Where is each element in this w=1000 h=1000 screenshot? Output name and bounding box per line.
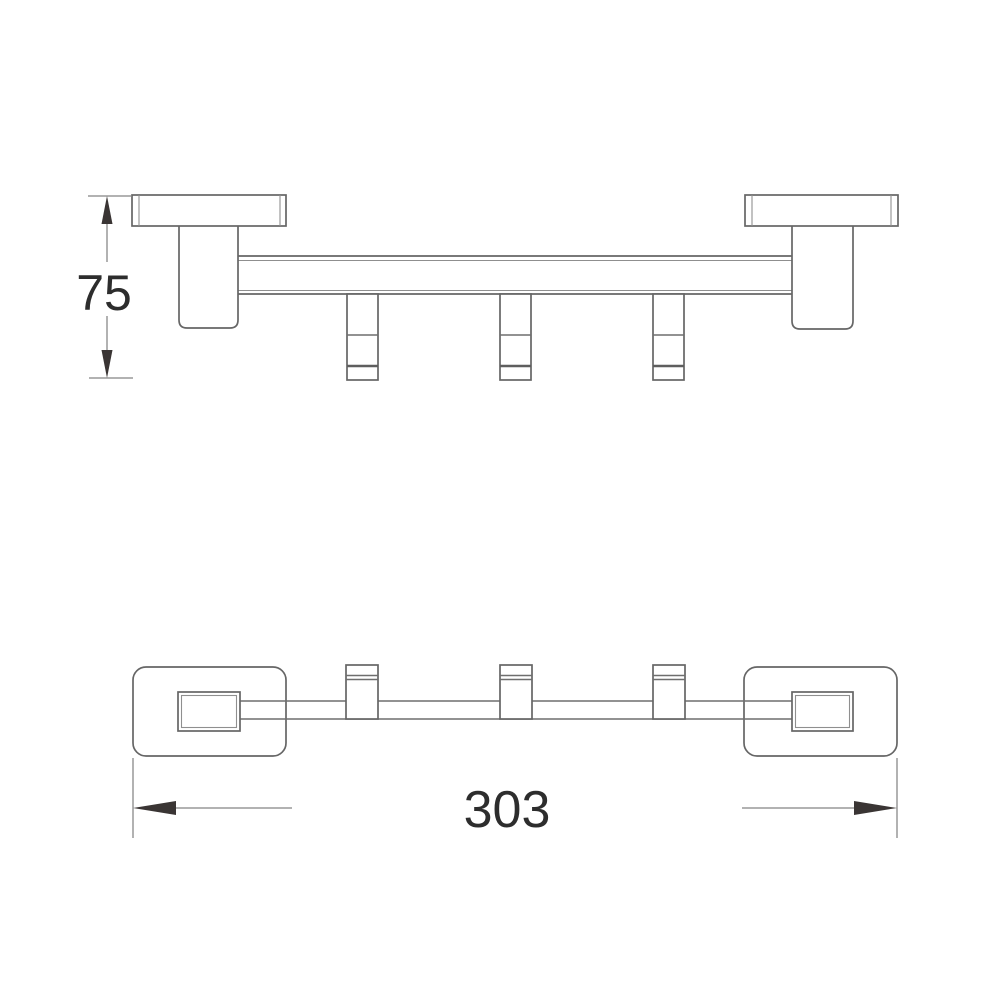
plan-hook-3-body xyxy=(653,665,685,719)
front-bar-body xyxy=(238,256,792,294)
plan-hook-3 xyxy=(653,665,685,719)
plan-left-post-outer xyxy=(178,692,240,731)
front-left-flange xyxy=(132,195,286,226)
front-hook-1 xyxy=(347,294,378,380)
length-arrow-right-icon xyxy=(854,801,897,815)
length-dimension-label: 303 xyxy=(464,781,551,839)
height-arrow-up-icon xyxy=(102,196,113,224)
length-arrow-left-icon xyxy=(133,801,176,815)
plan-left-post-section xyxy=(178,692,240,731)
height-dimension-label: 75 xyxy=(76,265,132,321)
front-hook-2 xyxy=(500,294,531,380)
front-left-post xyxy=(179,226,238,328)
front-right-flange xyxy=(745,195,898,226)
plan-right-post-section xyxy=(792,692,853,731)
towel-hook-rail-drawing: 75 xyxy=(0,0,1000,1000)
front-left-flange-plate xyxy=(132,195,286,226)
plan-hook-1-body xyxy=(346,665,378,719)
front-right-flange-plate xyxy=(745,195,898,226)
front-right-post xyxy=(792,226,853,329)
plan-hook-2 xyxy=(500,665,532,719)
plan-hook-1 xyxy=(346,665,378,719)
plan-right-post-outer xyxy=(792,692,853,731)
front-hook-3 xyxy=(653,294,684,380)
front-view: 75 xyxy=(76,195,898,380)
height-dimension: 75 xyxy=(76,196,133,378)
plan-hook-2-body xyxy=(500,665,532,719)
plan-view: 303 xyxy=(133,665,897,839)
height-arrow-down-icon xyxy=(102,350,113,378)
drawing-canvas: 75 xyxy=(0,0,1000,1000)
length-dimension: 303 xyxy=(133,758,897,839)
front-bar xyxy=(238,256,792,294)
